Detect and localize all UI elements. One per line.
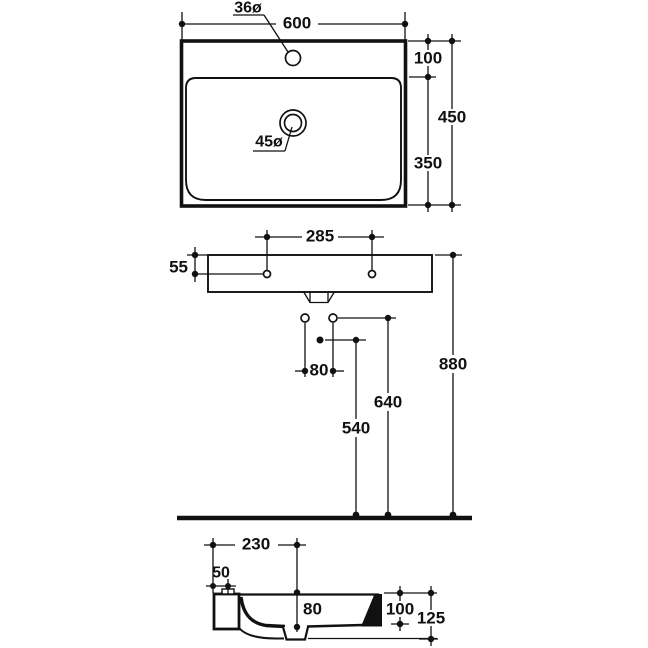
- label-overall-height: 125: [417, 609, 445, 628]
- label-supply-height: 640: [374, 393, 402, 412]
- supply-hole-right: [329, 314, 337, 322]
- label-waste-offset: 230: [242, 535, 270, 554]
- waste-hole-inner: [285, 115, 302, 132]
- tap-hole: [286, 51, 301, 66]
- label-rim-height: 880: [439, 355, 467, 374]
- supply-hole-left: [301, 314, 309, 322]
- fixing-hole-left: [264, 271, 271, 278]
- bowl-rim-plan: [186, 78, 401, 200]
- label-tap-hole-diameter: 36ø: [234, 0, 262, 17]
- label-bowl-inner-depth: 80: [303, 600, 322, 619]
- front-view: [208, 255, 432, 303]
- washbasin-technical-drawing: 36ø 45ø 600 100 350 450: [0, 0, 648, 648]
- wall-bracket-section: [214, 594, 239, 629]
- label-fixing-tab-width: 50: [212, 565, 230, 582]
- leader-tap-hole: 36ø: [233, 0, 288, 52]
- label-body-height: 100: [386, 600, 414, 619]
- label-fixing-hole-spacing: 285: [306, 227, 334, 246]
- dim-plan-right: 100 350 450: [408, 34, 466, 212]
- wall-connections: 80: [295, 314, 396, 380]
- label-rim-to-bowl-front: 100: [414, 49, 442, 68]
- bowl-left-wall-inner: [241, 597, 285, 627]
- drain-point: [317, 337, 324, 344]
- label-waste-hole-diameter: 45ø: [255, 134, 283, 151]
- bowl-left-wall-outer: [240, 629, 285, 639]
- dim-section-right: 100 125: [384, 586, 445, 646]
- waste-outlet-front: [304, 293, 334, 303]
- dim-overall-width: 600: [179, 12, 408, 41]
- label-overall-width: 600: [283, 14, 311, 33]
- plan-view: [182, 41, 406, 206]
- label-fixing-hole-drop: 55: [169, 258, 188, 277]
- label-overall-depth: 450: [438, 108, 466, 127]
- label-drain-center-height: 540: [342, 419, 370, 438]
- drawing-canvas: 36ø 45ø 600 100 350 450: [0, 0, 648, 648]
- bowl-bottom-inner: [307, 625, 363, 627]
- right-wall-section: [361, 594, 382, 627]
- fixing-hole-right: [369, 271, 376, 278]
- label-supply-spacing: 80: [310, 361, 329, 380]
- label-bowl-front-to-back: 350: [414, 154, 442, 173]
